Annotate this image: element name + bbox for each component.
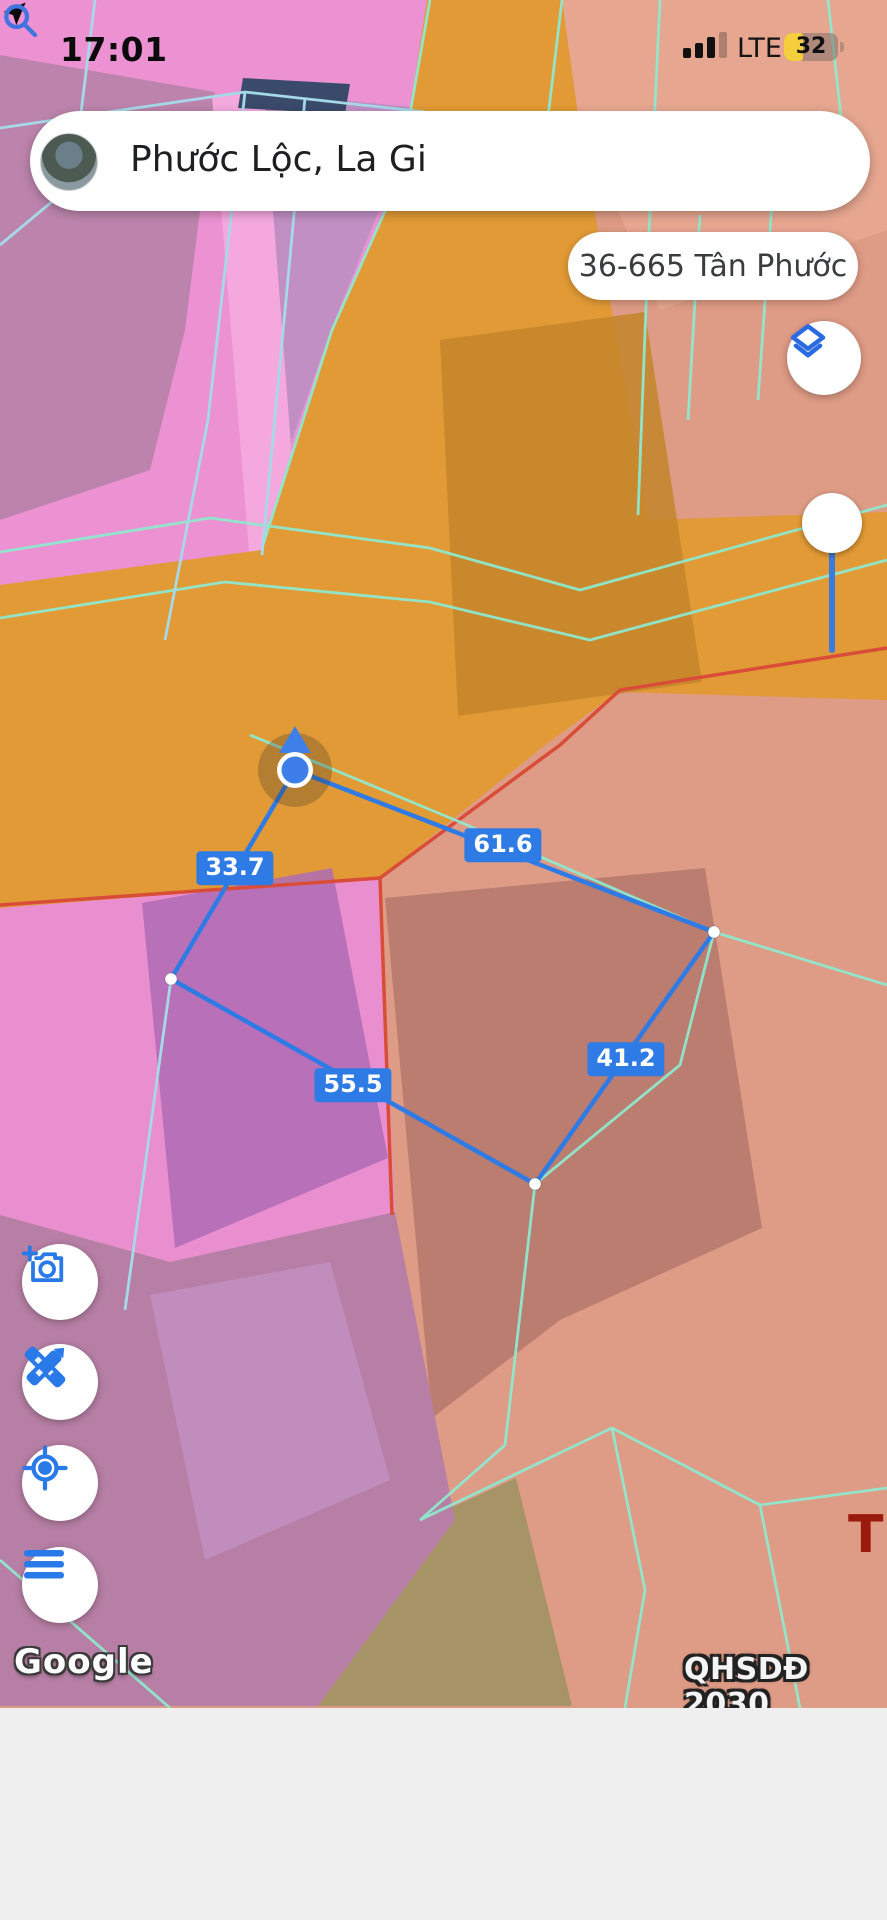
battery-nub: [840, 42, 844, 52]
camera-plus-icon: [22, 1244, 66, 1288]
my-location-button[interactable]: [22, 1445, 98, 1521]
my-location-icon: [22, 1445, 68, 1491]
layers-button[interactable]: [787, 321, 861, 395]
parcel-chip[interactable]: 36-665 Tân Phước: [568, 232, 858, 300]
plan-watermark: QHSDĐ 2030: [684, 1652, 887, 1708]
battery-icon: 32: [784, 33, 838, 61]
search-input[interactable]: Phước Lộc, La Gi: [130, 139, 427, 180]
add-photo-button[interactable]: [22, 1244, 98, 1320]
map-canvas[interactable]: TN 61.6 33.7 55.5 41.2 17:: [0, 0, 887, 1708]
map-red-label: TN: [848, 1505, 887, 1565]
measure-label-61-6: 61.6: [464, 828, 541, 862]
vertex-dot[interactable]: [529, 1178, 541, 1190]
battery-percent: 32: [784, 34, 838, 59]
menu-icon: [22, 1547, 66, 1581]
measure-label-55-5: 55.5: [314, 1068, 391, 1102]
search-icon[interactable]: [0, 0, 40, 40]
bottom-panel: [0, 1708, 887, 1920]
zone-gold-field: [440, 312, 702, 716]
menu-button[interactable]: [22, 1547, 98, 1623]
measure-label-33-7: 33.7: [196, 851, 273, 885]
zone-brick-field: [385, 868, 762, 1418]
crossed-tools-icon: [22, 1344, 68, 1390]
vertex-dot[interactable]: [708, 926, 720, 938]
signal-bars-icon: [683, 32, 729, 60]
google-logo: Google: [14, 1642, 154, 1682]
measure-tools-button[interactable]: [22, 1344, 98, 1420]
avatar[interactable]: [40, 133, 98, 191]
layers-icon: [787, 321, 829, 363]
map-building: [238, 78, 350, 114]
network-type-label: LTE: [737, 33, 782, 64]
status-time: 17:01: [60, 30, 168, 69]
phone-screen: TN 61.6 33.7 55.5 41.2 17:: [0, 0, 887, 1920]
vertex-dot[interactable]: [165, 973, 177, 985]
measure-label-41-2: 41.2: [587, 1042, 664, 1076]
slider-handle[interactable]: [802, 493, 862, 553]
